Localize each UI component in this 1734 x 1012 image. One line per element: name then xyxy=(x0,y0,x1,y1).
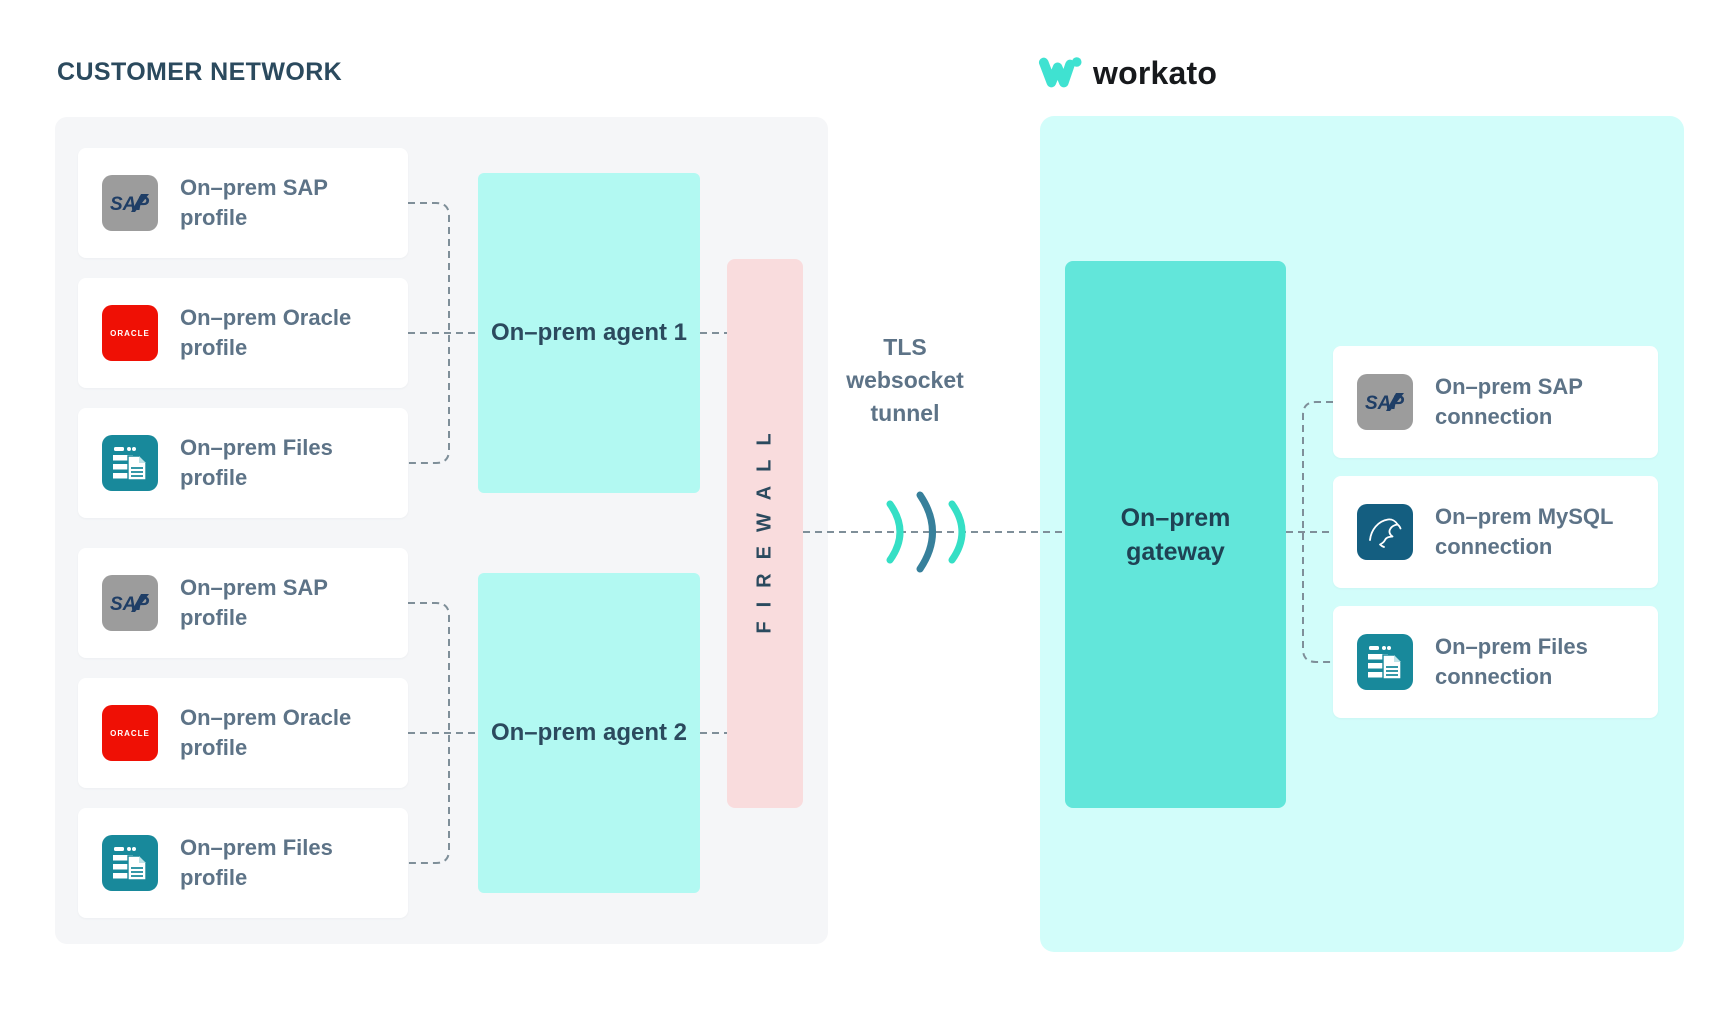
profile-card-label: On–prem Files profile xyxy=(180,433,385,493)
connection-card-mysql: On–prem MySQL connection xyxy=(1333,476,1658,588)
workato-logo: workato xyxy=(1038,53,1217,93)
firewall-label: FIREWALL xyxy=(754,419,777,647)
tunnel-signal-icon xyxy=(890,495,962,569)
profile-card-label: On–prem Oracle profile xyxy=(180,303,385,363)
tunnel-label-line3: tunnel xyxy=(795,397,1015,430)
svg-text:ORACLE: ORACLE xyxy=(110,329,150,338)
connection-card-label: On–prem SAP connection xyxy=(1435,372,1640,432)
connection-card-files: On–prem Files connection xyxy=(1333,606,1658,718)
profile-card-label: On–prem Files profile xyxy=(180,833,385,893)
files-icon xyxy=(102,435,158,491)
agent-2-label: On–prem agent 2 xyxy=(491,719,687,747)
profile-card-label: On–prem Oracle profile xyxy=(180,703,385,763)
gateway-label: On–prem gateway xyxy=(1101,501,1251,569)
sap-icon: SAP xyxy=(1357,374,1413,430)
files-icon xyxy=(102,835,158,891)
customer-network-heading: CUSTOMER NETWORK xyxy=(57,58,342,87)
profile-card-sap-1: SAP On–prem SAP profile xyxy=(78,148,408,258)
on-prem-agent-2-box: On–prem agent 2 xyxy=(478,573,700,893)
diagram-canvas: CUSTOMER NETWORK workato xyxy=(0,0,1734,1012)
agent-1-label: On–prem agent 1 xyxy=(491,319,687,347)
workato-logo-text: workato xyxy=(1093,55,1217,92)
oracle-icon: ORACLE xyxy=(102,305,158,361)
profile-card-oracle-2: ORACLE On–prem Oracle profile xyxy=(78,678,408,788)
workato-mark-icon xyxy=(1038,53,1082,93)
profile-card-files-1: On–prem Files profile xyxy=(78,408,408,518)
firewall-bar: FIREWALL xyxy=(727,259,803,808)
profile-card-sap-2: SAP On–prem SAP profile xyxy=(78,548,408,658)
on-prem-agent-1-box: On–prem agent 1 xyxy=(478,173,700,493)
on-prem-gateway-box: On–prem gateway xyxy=(1065,261,1286,808)
files-icon xyxy=(1357,634,1413,690)
oracle-icon: ORACLE xyxy=(102,705,158,761)
sap-icon: SAP xyxy=(102,175,158,231)
profile-card-oracle-1: ORACLE On–prem Oracle profile xyxy=(78,278,408,388)
sap-icon: SAP xyxy=(102,575,158,631)
tunnel-label-line2: websocket xyxy=(795,364,1015,397)
connection-card-label: On–prem Files connection xyxy=(1435,632,1640,692)
connection-card-label: On–prem MySQL connection xyxy=(1435,502,1640,562)
profile-card-label: On–prem SAP profile xyxy=(180,173,385,233)
tls-tunnel-label: TLS websocket tunnel xyxy=(795,331,1015,430)
connection-card-sap: SAP On–prem SAP connection xyxy=(1333,346,1658,458)
svg-text:ORACLE: ORACLE xyxy=(110,729,150,738)
mysql-icon xyxy=(1357,504,1413,560)
profile-card-files-2: On–prem Files profile xyxy=(78,808,408,918)
tunnel-label-line1: TLS xyxy=(795,331,1015,364)
profile-card-label: On–prem SAP profile xyxy=(180,573,385,633)
